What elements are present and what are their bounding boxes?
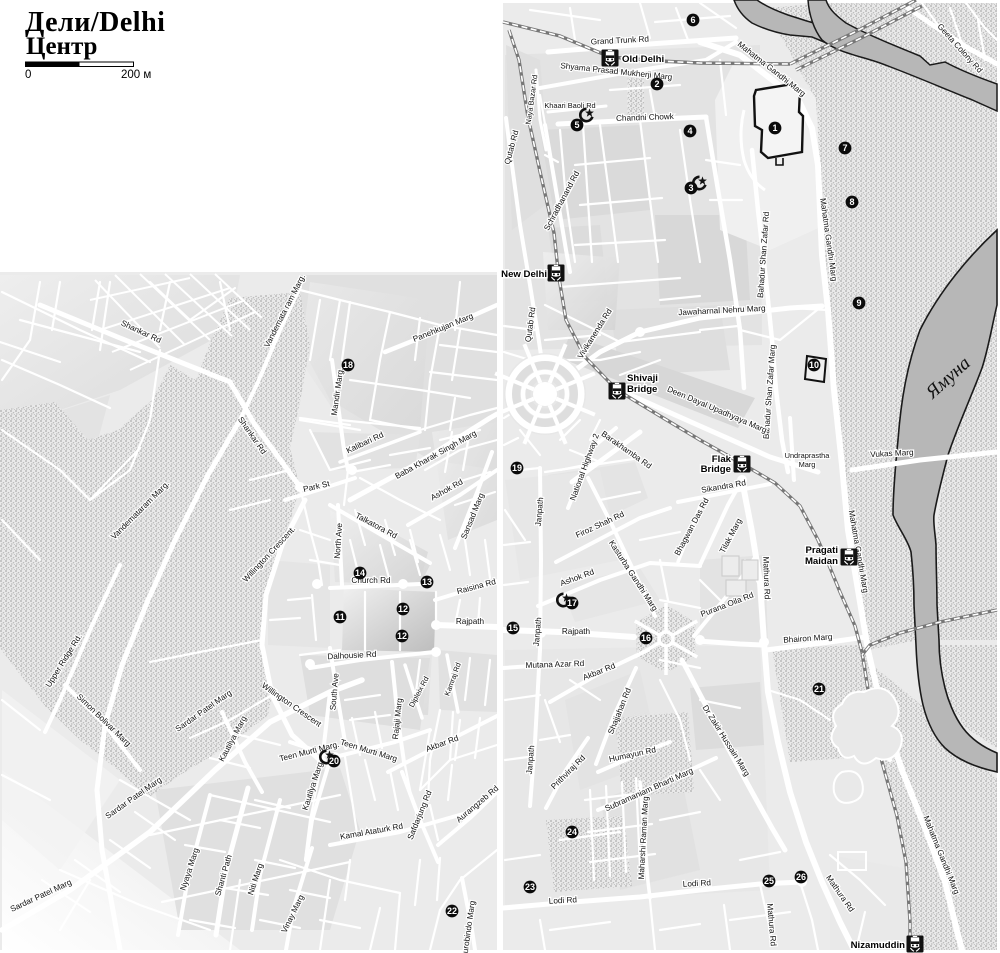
- svg-text:22: 22: [447, 906, 457, 916]
- svg-text:Bridge: Bridge: [627, 384, 657, 395]
- svg-text:26: 26: [796, 872, 806, 882]
- svg-text:Bridge: Bridge: [701, 464, 731, 475]
- svg-text:200 м: 200 м: [121, 69, 151, 81]
- svg-text:12: 12: [398, 604, 408, 614]
- svg-text:23: 23: [525, 882, 535, 892]
- svg-text:Undraprastha: Undraprastha: [785, 451, 831, 460]
- svg-text:Pragati: Pragati: [805, 545, 838, 556]
- svg-text:Mathura Rd: Mathura Rd: [761, 556, 772, 600]
- svg-text:1: 1: [772, 123, 777, 133]
- svg-text:0: 0: [25, 69, 31, 81]
- svg-text:14: 14: [355, 568, 365, 578]
- svg-text:19: 19: [512, 463, 522, 473]
- svg-text:Old Delhi: Old Delhi: [622, 54, 664, 65]
- svg-text:Rajpath: Rajpath: [456, 617, 485, 626]
- svg-text:16: 16: [641, 633, 651, 643]
- svg-text:Khaari Baoli Rd: Khaari Baoli Rd: [544, 101, 595, 110]
- svg-text:8: 8: [849, 197, 854, 207]
- svg-text:4: 4: [687, 126, 692, 136]
- svg-text:9: 9: [856, 298, 861, 308]
- svg-text:13: 13: [422, 577, 432, 587]
- svg-text:Marg: Marg: [799, 460, 816, 469]
- svg-text:Lodi Rd: Lodi Rd: [683, 878, 712, 888]
- svg-text:24: 24: [567, 827, 577, 837]
- svg-text:12: 12: [397, 631, 407, 641]
- svg-text:New Delhi: New Delhi: [501, 269, 547, 280]
- svg-text:Rajpath: Rajpath: [562, 627, 591, 636]
- svg-text:10: 10: [809, 360, 819, 370]
- svg-text:2: 2: [654, 79, 659, 89]
- svg-text:Центр: Центр: [26, 33, 97, 60]
- svg-text:18: 18: [343, 360, 353, 370]
- svg-text:11: 11: [335, 612, 345, 622]
- svg-text:21: 21: [814, 684, 824, 694]
- svg-text:25: 25: [764, 876, 774, 886]
- svg-text:Shivaji: Shivaji: [627, 373, 658, 384]
- svg-text:Maidan: Maidan: [805, 556, 838, 567]
- svg-text:Lodi Rd: Lodi Rd: [549, 895, 578, 905]
- svg-text:15: 15: [508, 623, 518, 633]
- svg-text:5: 5: [574, 120, 579, 130]
- svg-text:Nizamuddin: Nizamuddin: [851, 940, 906, 951]
- svg-text:3: 3: [688, 183, 693, 193]
- svg-text:17: 17: [567, 598, 577, 608]
- svg-text:7: 7: [842, 143, 847, 153]
- svg-text:6: 6: [690, 15, 695, 25]
- svg-text:20: 20: [329, 756, 339, 766]
